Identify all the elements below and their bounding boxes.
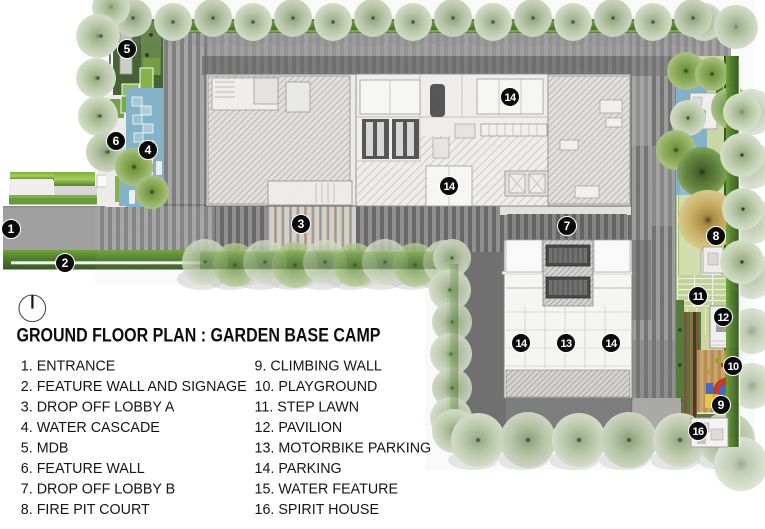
- svg-text:15. WATER FEATURE: 15. WATER FEATURE: [255, 481, 399, 497]
- svg-text:14: 14: [515, 338, 528, 350]
- svg-text:13: 13: [560, 338, 572, 350]
- svg-text:6: 6: [113, 134, 120, 148]
- svg-text:14: 14: [504, 92, 517, 104]
- svg-text:5. MDB: 5. MDB: [21, 440, 69, 456]
- svg-text:2: 2: [62, 256, 69, 270]
- svg-text:11. STEP LAWN: 11. STEP LAWN: [255, 399, 360, 415]
- svg-text:16. SPIRIT HOUSE: 16. SPIRIT HOUSE: [255, 502, 379, 518]
- svg-text:16: 16: [692, 426, 704, 438]
- svg-text:14: 14: [443, 181, 456, 193]
- svg-text:9: 9: [718, 398, 725, 412]
- svg-text:8. FIRE PIT COURT: 8. FIRE PIT COURT: [21, 502, 150, 518]
- svg-text:4: 4: [145, 143, 152, 157]
- svg-text:14. PARKING: 14. PARKING: [255, 461, 342, 477]
- svg-text:3. DROP OFF LOBBY A: 3. DROP OFF LOBBY A: [21, 399, 175, 415]
- svg-text:10: 10: [727, 361, 739, 373]
- svg-text:4. WATER CASCADE: 4. WATER CASCADE: [21, 420, 160, 436]
- svg-text:2. FEATURE WALL AND SIGNAGE: 2. FEATURE WALL AND SIGNAGE: [21, 379, 247, 395]
- svg-text:7. DROP OFF LOBBY B: 7. DROP OFF LOBBY B: [21, 481, 175, 497]
- svg-text:11: 11: [693, 291, 704, 303]
- svg-text:6. FEATURE WALL: 6. FEATURE WALL: [21, 461, 145, 477]
- svg-text:1: 1: [8, 222, 15, 236]
- svg-text:8: 8: [713, 229, 720, 243]
- svg-text:GROUND FLOOR PLAN : GARDEN BAS: GROUND FLOOR PLAN : GARDEN BASE CAMP: [17, 325, 381, 346]
- svg-text:3: 3: [298, 217, 305, 231]
- svg-text:1. ENTRANCE: 1. ENTRANCE: [21, 358, 116, 374]
- svg-text:12. PAVILION: 12. PAVILION: [255, 420, 343, 436]
- svg-text:14: 14: [605, 338, 618, 350]
- svg-text:12: 12: [717, 312, 729, 324]
- svg-text:10. PLAYGROUND: 10. PLAYGROUND: [255, 379, 378, 395]
- svg-text:5: 5: [124, 42, 131, 56]
- svg-text:7: 7: [564, 219, 571, 233]
- svg-text:9. CLIMBING WALL: 9. CLIMBING WALL: [255, 358, 382, 374]
- svg-text:13. MOTORBIKE PARKING: 13. MOTORBIKE PARKING: [255, 440, 432, 456]
